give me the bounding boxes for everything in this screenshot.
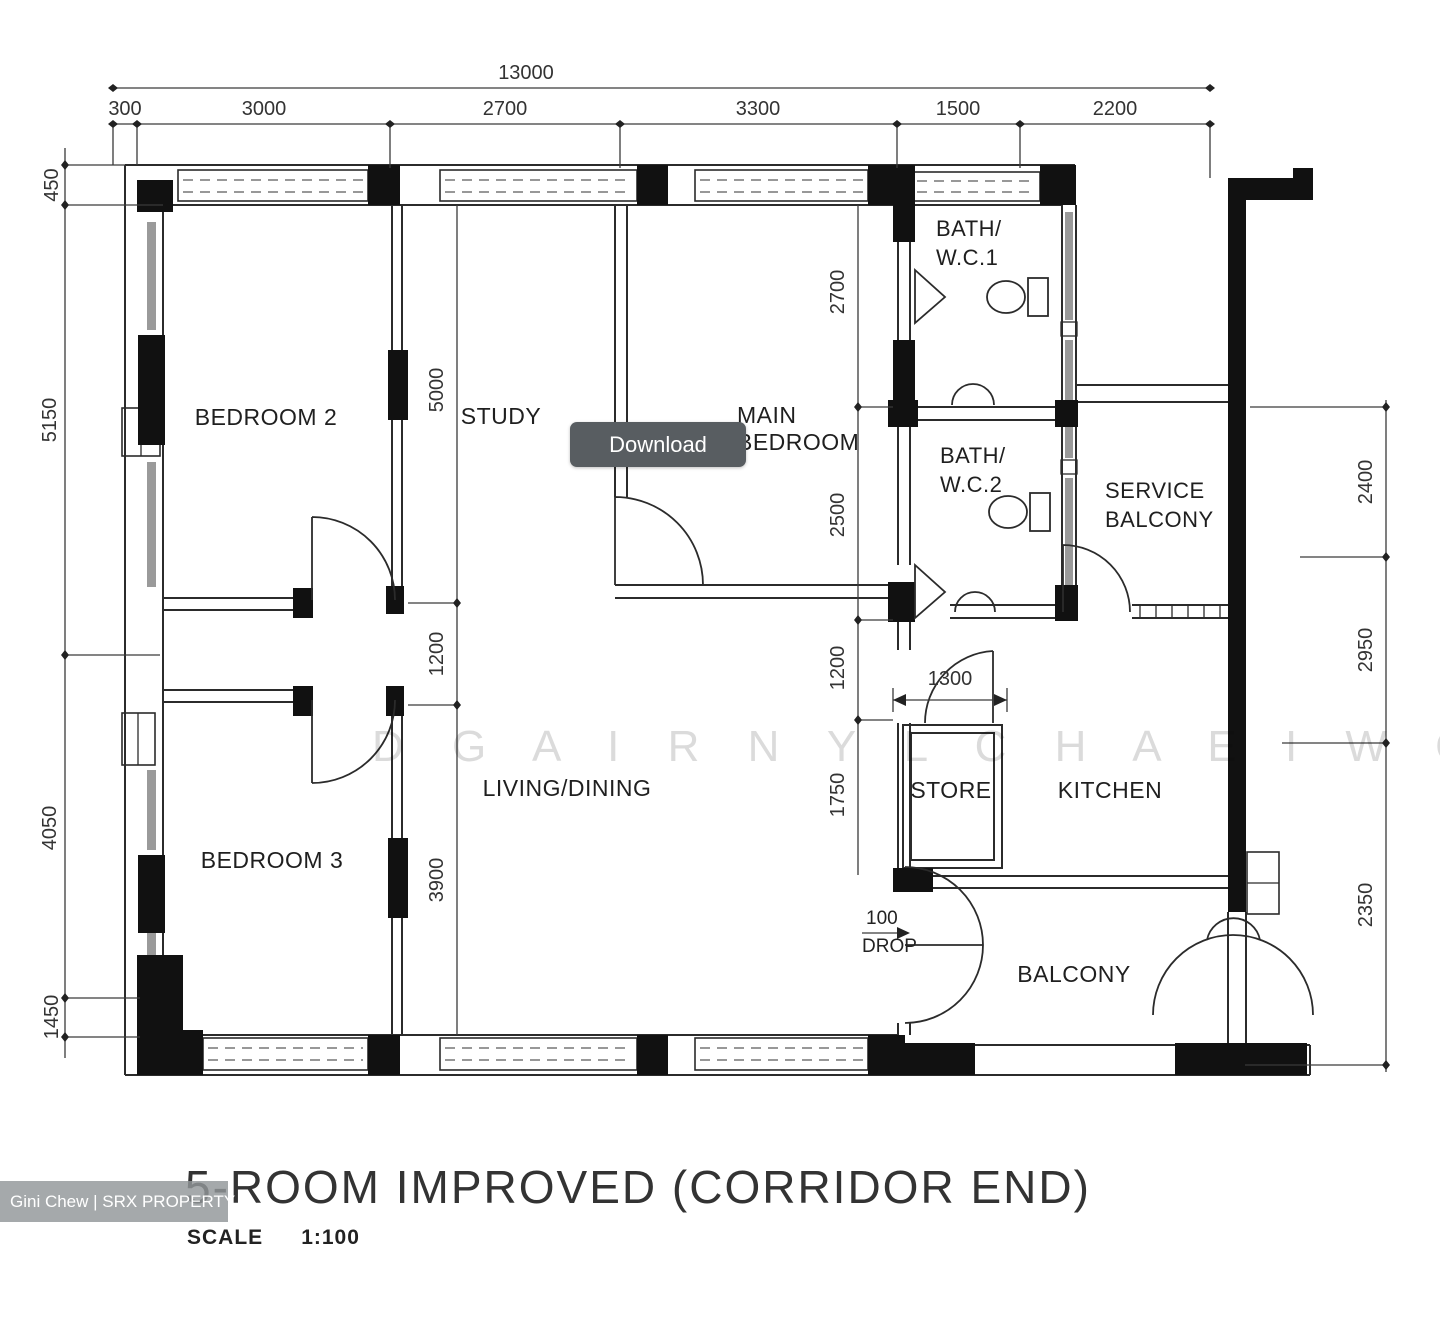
dim-mbr-2700: 2700 <box>827 247 849 337</box>
room-study: STUDY <box>461 403 541 430</box>
room-store: STORE <box>910 777 991 804</box>
plan-title: 5-ROOM IMPROVED (CORRIDOR END) <box>185 1160 1091 1214</box>
room-service-balcony: SERVICE BALCONY <box>1105 476 1214 534</box>
room-living-dining: LIVING/DINING <box>483 775 652 802</box>
scale-note: SCALE1:100 <box>187 1226 398 1250</box>
download-button[interactable]: Download <box>570 422 746 467</box>
bath1-line2: W.C.1 <box>936 243 1002 272</box>
floorplan-drawing <box>0 0 1440 1328</box>
room-bath-wc1: BATH/ W.C.1 <box>936 214 1002 272</box>
dim-left-450: 450 <box>41 140 63 230</box>
dim-total-width: 13000 <box>498 62 554 85</box>
dim-mbr-1200: 1200 <box>827 623 849 713</box>
bath1-line1: BATH/ <box>936 214 1002 243</box>
service-line2: BALCONY <box>1105 505 1214 534</box>
drop-label: DROP <box>862 936 917 958</box>
service-line1: SERVICE <box>1105 476 1214 505</box>
structural-columns <box>137 165 1313 1075</box>
dim-top-3300: 3300 <box>736 98 781 121</box>
floorplan-page: D G A I R N Y L C H A E I W G 13000 300 … <box>0 0 1440 1328</box>
dim-left-1450: 1450 <box>41 972 63 1062</box>
dim-top-1500: 1500 <box>936 98 981 121</box>
dim-mbr-2500: 2500 <box>827 470 849 560</box>
scale-value: 1:100 <box>301 1226 360 1249</box>
drop-value: 100 <box>866 908 898 930</box>
center-watermark: D G A I R N Y L C H A E I W G <box>372 722 1440 772</box>
toilet-wc1 <box>987 278 1048 316</box>
bath2-line1: BATH/ <box>940 441 1006 470</box>
dim-study-5000: 5000 <box>426 345 448 435</box>
bath2-door <box>915 565 945 618</box>
agent-watermark-badge: Gini Chew | SRX PROPERTY <box>0 1181 228 1222</box>
room-bedroom3: BEDROOM 3 <box>201 847 344 874</box>
dim-right-2350: 2350 <box>1355 860 1377 950</box>
walls <box>125 165 1310 1075</box>
dim-left-4050: 4050 <box>39 783 61 873</box>
dim-right-2950: 2950 <box>1355 605 1377 695</box>
dim-top-2200: 2200 <box>1093 98 1138 121</box>
dim-right-2400: 2400 <box>1355 437 1377 527</box>
room-balcony: BALCONY <box>1017 961 1130 988</box>
room-kitchen: KITCHEN <box>1058 777 1162 804</box>
dim-top-2700: 2700 <box>483 98 528 121</box>
dim-study-3900: 3900 <box>426 835 448 925</box>
dim-study-1200: 1200 <box>426 609 448 699</box>
room-main-bedroom: MAIN BEDROOM <box>737 402 859 456</box>
dim-left-5150: 5150 <box>39 375 61 465</box>
dimension-lines <box>65 88 1386 1072</box>
scale-label: SCALE <box>187 1226 263 1249</box>
bath2-line2: W.C.2 <box>940 470 1006 499</box>
window-band <box>122 170 1279 1070</box>
dimension-ticks <box>61 84 1390 1070</box>
main-bedroom-line1: MAIN <box>737 402 859 429</box>
bath1-door <box>915 270 945 323</box>
dim-store-1300: 1300 <box>928 668 973 691</box>
main-bedroom-line2: BEDROOM <box>737 429 859 456</box>
dim-mbr-1750: 1750 <box>827 750 849 840</box>
room-bedroom2: BEDROOM 2 <box>195 404 338 431</box>
room-bath-wc2: BATH/ W.C.2 <box>940 441 1006 499</box>
dim-top-3000: 3000 <box>242 98 287 121</box>
dim-top-300: 300 <box>108 98 141 121</box>
